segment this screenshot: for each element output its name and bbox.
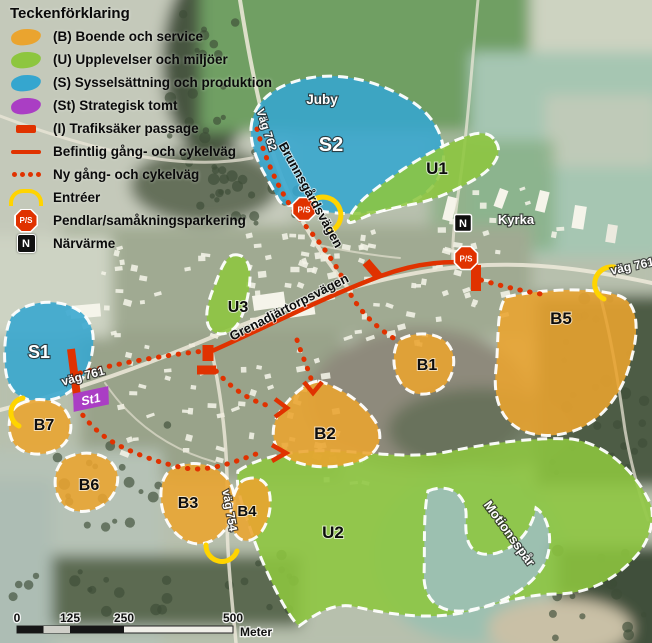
building [190,385,196,390]
tree [101,522,110,531]
legend-item-ny: Ny gång- och cykelväg [8,163,272,186]
building [298,234,305,239]
building [188,408,194,415]
building [421,278,427,285]
tree [150,604,161,615]
building [129,391,137,395]
legend-item-label: (U) Upplevelser och miljöer [53,52,228,67]
label-s2: S2 [319,134,343,156]
building [489,218,496,223]
legend-item-entreer: Entréer [8,186,272,209]
existing-path-line-icon [11,150,41,154]
legend-item-label: Entréer [53,190,100,205]
label-b1: B1 [417,357,438,374]
tree [549,610,557,618]
label-juby: Juby [306,92,338,107]
building [258,271,267,278]
scale-tick-0: 0 [14,611,21,625]
building [241,367,247,373]
building [207,403,216,408]
tree [579,613,585,619]
tree [69,575,80,586]
scale-tick-250: 250 [114,611,134,625]
building [472,190,479,195]
legend-item-label: Ny gång- och cykelväg [53,167,199,182]
building [551,231,557,238]
ps-badge-text: P/S [16,210,37,231]
tree [611,580,617,586]
building [438,227,446,232]
district-heating-badge: N [455,215,472,232]
building [321,372,331,379]
tree [162,576,171,585]
legend: Teckenförklaring (B) Boende och service … [8,5,272,255]
tree [611,589,622,600]
label-s1: S1 [28,342,50,362]
legend-item-sysselsattning: (S) Sysselsättning och produktion [8,71,272,94]
building [164,368,172,372]
building [289,234,296,238]
scale-unit: Meter [240,625,272,639]
building [480,203,487,209]
scale-bar-segment [44,626,71,633]
tree [125,518,135,528]
tree [255,560,261,566]
tree [631,448,638,455]
legend-item-label: (I) Trafiksäker passage [53,121,199,136]
building [238,401,246,406]
ps-parking-badge: P/S [455,247,478,270]
building [334,253,340,259]
tree [53,453,63,463]
tree [78,569,83,574]
label-b3: B3 [178,495,199,512]
scale-bar-segment [17,626,44,633]
label-b5: B5 [550,309,572,328]
building [130,264,138,272]
tree [623,629,634,640]
legend-item-befintlig: Befintlig gång- och cykelväg [8,140,272,163]
zone-upplevelser-swatch-icon [10,50,42,69]
legend-item-label: (B) Boende och service [53,29,203,44]
planning-map: P/S P/S N St1 Juby S2 U1 U3 S1 B7 B6 B3 … [0,0,652,643]
tree [114,587,125,598]
tree [266,604,272,610]
tree [638,438,648,448]
building [556,227,564,231]
building [119,259,124,265]
label-b4: B4 [237,503,257,520]
legend-item-narvarme: N Närvärme [8,232,272,255]
tree [613,420,622,429]
ps-badge-icon: P/S [14,209,38,233]
building [284,283,291,288]
tree [639,396,649,406]
tree [24,580,34,590]
label-kyrka: Kyrka [498,212,535,227]
building [282,233,289,240]
building [360,235,366,242]
tree [241,578,249,586]
label-u2: U2 [322,523,344,542]
building [415,284,421,288]
legend-item-strategisk: (St) Strategisk tomt [8,94,272,117]
legend-item-label: Närvärme [53,236,115,251]
scale-bar-segment [70,626,124,633]
tree [84,522,91,529]
building [249,432,255,439]
label-u3: U3 [228,299,249,316]
label-b6: B6 [79,477,100,494]
tree [88,586,96,594]
building [436,316,442,322]
scale-tick-125: 125 [60,611,80,625]
label-b2: B2 [314,424,336,443]
entrance-arc-icon [9,189,43,206]
legend-title: Teckenförklaring [10,5,272,22]
legend-item-label: (S) Sysselsättning och produktion [53,75,272,90]
legend-item-label: (St) Strategisk tomt [53,98,178,113]
scale-tick-500: 500 [223,611,243,625]
tree [9,592,18,601]
building [115,289,123,293]
tree [119,464,126,471]
legend-item-boende: (B) Boende och service [8,25,272,48]
tree [103,577,109,583]
tree [124,477,135,488]
zone-sysselsattning-swatch-icon [10,73,42,92]
legend-item-label: Pendlar/samåkningsparkering [53,213,246,228]
tree [593,422,601,430]
n-badge-label: N [459,218,467,230]
building [104,305,110,310]
legend-item-label: Befintlig gång- och cykelväg [53,144,236,159]
building [133,437,139,441]
passage-dash-icon [16,125,36,133]
tree [112,519,117,524]
building [307,268,315,273]
n-badge-icon: N [17,234,36,253]
tree [164,421,172,429]
building [495,250,501,255]
tree [641,612,646,617]
zone-boende-swatch-icon [10,27,42,46]
tree [639,419,647,427]
tree [552,635,559,642]
tree [33,573,39,579]
ps-badge-label: P/S [460,255,474,264]
label-b7: B7 [34,417,55,434]
label-u1: U1 [426,159,448,178]
legend-item-passage: (I) Trafiksäker passage [8,117,272,140]
legend-item-pendlarparkering: P/S Pendlar/samåkningsparkering [8,209,272,232]
building [114,333,121,337]
tree [15,581,23,589]
tree [139,489,144,494]
building [140,300,145,304]
new-path-dots-icon [12,172,41,177]
building [373,303,380,307]
zone-strategisk-swatch-icon [10,96,42,115]
legend-item-upplevelser: (U) Upplevelser och miljöer [8,48,272,71]
tree [162,593,173,604]
tree [148,492,159,503]
tree [101,606,112,617]
building [290,267,299,272]
